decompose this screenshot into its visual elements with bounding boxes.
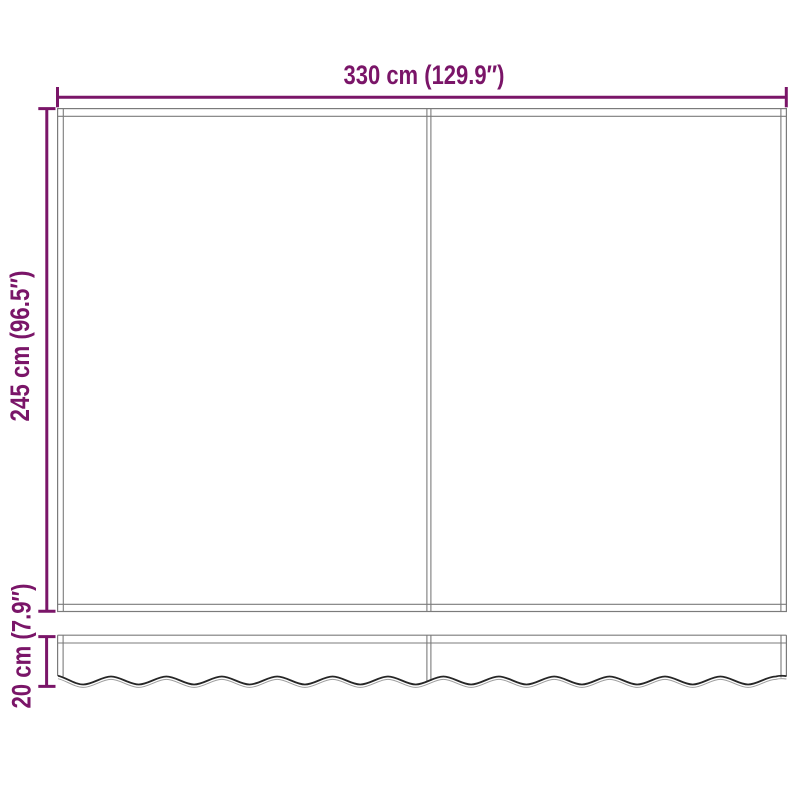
- svg-text:330 cm (129.9″): 330 cm (129.9″): [344, 60, 505, 90]
- svg-text:245 cm (96.5″): 245 cm (96.5″): [5, 271, 35, 422]
- svg-text:20 cm (7.9″): 20 cm (7.9″): [7, 584, 37, 709]
